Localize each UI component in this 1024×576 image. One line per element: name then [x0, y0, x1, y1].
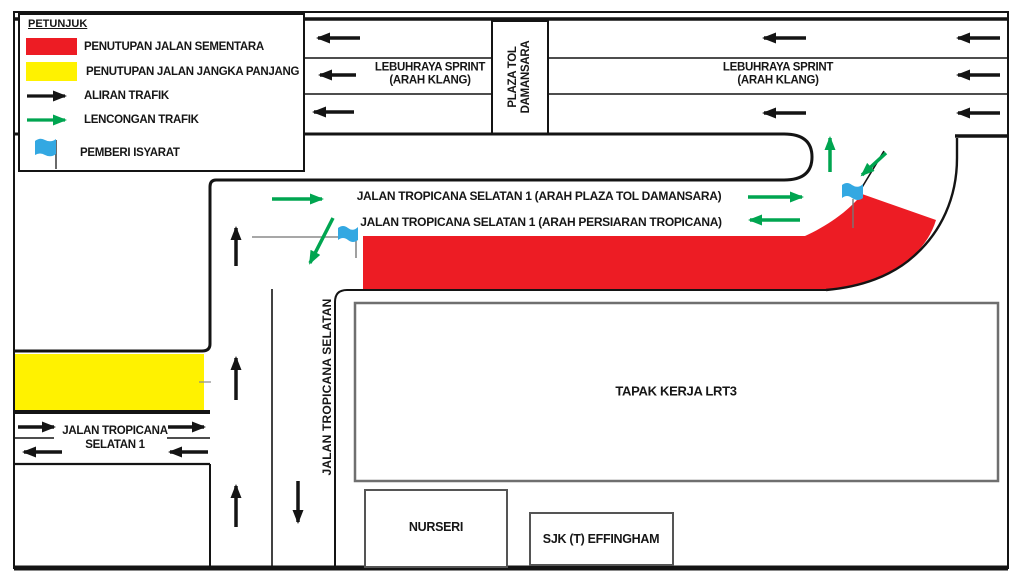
flag-icon	[842, 183, 863, 200]
toll-plaza-line1: PLAZA TOL	[507, 41, 520, 114]
highway-label-left-line2: (ARAH KLANG)	[375, 74, 485, 87]
legend-item-temporary-closure: PENUTUPAN JALAN SEMENTARA	[84, 41, 264, 53]
toll-plaza-label: PLAZA TOL DAMANSARA	[507, 41, 533, 114]
left-road-line2: SELATAN 1	[62, 438, 167, 452]
yellow-swatch-icon	[26, 62, 77, 81]
legend: PETUNJUK PENUTUPAN JALAN SEMENTARA PENUT…	[18, 13, 305, 172]
highway-label-left: LEBUHRAYA SPRINT (ARAH KLANG)	[375, 62, 485, 87]
red-swatch-icon	[26, 38, 77, 55]
longterm-road-closure-area	[15, 354, 204, 410]
vertical-road-label: JALAN TROPICANA SELATAN	[320, 298, 334, 475]
nursery-label: NURSERI	[409, 520, 463, 534]
temporary-road-closure-area	[363, 194, 936, 290]
traffic-diversion-diagram: PETUNJUK PENUTUPAN JALAN SEMENTARA PENUT…	[0, 0, 1024, 576]
legend-item-diversion: LENCONGAN TRAFIK	[84, 114, 199, 126]
school-label: SJK (T) EFFINGHAM	[543, 532, 659, 546]
jts1-westbound-label: JALAN TROPICANA SELATAN 1 (ARAH PERSIARA…	[360, 215, 722, 229]
diversion-arrow	[310, 218, 333, 263]
flagman-marker-west	[338, 226, 358, 258]
legend-title: PETUNJUK	[28, 18, 87, 30]
jts1-eastbound-label: JALAN TROPICANA SELATAN 1 (ARAH PLAZA TO…	[357, 189, 722, 203]
flagman-icon	[33, 136, 65, 172]
legend-item-longterm-closure: PENUTUPAN JALAN JANGKA PANJANG	[86, 66, 299, 78]
diversion-arrow	[862, 153, 886, 175]
highway-label-right: LEBUHRAYA SPRINT (ARAH KLANG)	[723, 62, 833, 87]
highway-label-left-line1: LEBUHRAYA SPRINT	[375, 62, 485, 75]
left-road-label: JALAN TROPICANA SELATAN 1	[62, 424, 167, 452]
legend-item-traffic-flow: ALIRAN TRAFIK	[84, 90, 169, 102]
flag-icon	[338, 226, 358, 242]
legend-item-flagman: PEMBERI ISYARAT	[80, 147, 180, 159]
left-road-line1: JALAN TROPICANA	[62, 424, 167, 438]
traffic-flow-arrow-icon	[25, 89, 81, 103]
highway-label-right-line1: LEBUHRAYA SPRINT	[723, 62, 833, 75]
highway-label-right-line2: (ARAH KLANG)	[723, 74, 833, 87]
toll-plaza-line2: DAMANSARA	[520, 41, 533, 114]
lrt3-worksite-label: TAPAK KERJA LRT3	[615, 384, 736, 399]
diversion-arrow-icon	[25, 113, 81, 127]
